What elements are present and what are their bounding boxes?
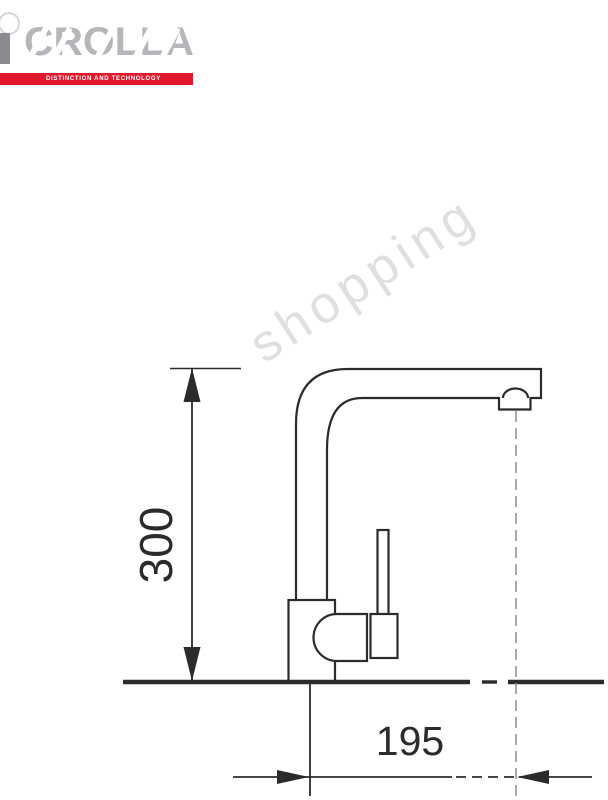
tap-lever-base xyxy=(371,614,398,658)
tap-technical-drawing: 300 195 xyxy=(0,0,608,800)
arrow-down-icon xyxy=(184,647,201,681)
tap-aerator-dome xyxy=(503,389,528,399)
arrow-up-icon xyxy=(184,368,201,402)
tap-spout-inner-contour xyxy=(327,398,499,600)
tap-aerator xyxy=(499,389,531,410)
tap-cartridge-housing xyxy=(314,614,368,661)
dimension-reach-value: 195 xyxy=(376,718,444,764)
arrow-left-icon xyxy=(517,770,549,784)
tap-lever-handle xyxy=(378,530,389,615)
tap-aerator-housing xyxy=(499,397,531,410)
drawing-sheet: CROLLA DISTINCTION AND TECHNOLOGY shoppi… xyxy=(0,0,608,800)
arrow-right-icon xyxy=(277,770,309,784)
dimension-height-value: 300 xyxy=(130,507,182,584)
dimension-height-300: 300 xyxy=(130,368,241,681)
dimension-reach-195: 195 xyxy=(233,718,592,784)
tap-spout-outer-contour xyxy=(296,369,541,600)
